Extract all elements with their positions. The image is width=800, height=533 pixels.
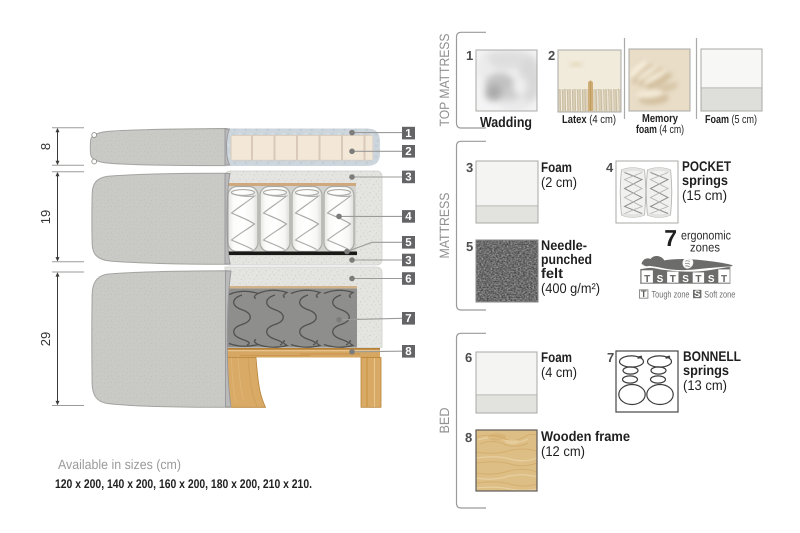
- svg-text:MATTRESS: MATTRESS: [437, 193, 452, 259]
- svg-text:Wooden frame: Wooden frame: [541, 428, 630, 444]
- svg-text:4: 4: [606, 160, 614, 175]
- svg-text:4: 4: [405, 211, 412, 223]
- svg-text:(4 cm): (4 cm): [541, 364, 577, 380]
- svg-text:5: 5: [405, 237, 412, 249]
- svg-text:120 x 200, 140 x 200, 160 x 20: 120 x 200, 140 x 200, 160 x 200, 180 x 2…: [55, 477, 312, 491]
- svg-text:7: 7: [405, 313, 411, 325]
- svg-text:6: 6: [405, 273, 411, 285]
- svg-text:felt: felt: [541, 265, 563, 281]
- svg-text:2: 2: [405, 146, 411, 158]
- svg-text:8: 8: [38, 143, 53, 150]
- svg-text:8: 8: [405, 346, 412, 358]
- svg-text:Latex (4 cm): Latex (4 cm): [562, 114, 616, 126]
- svg-text:1: 1: [466, 48, 473, 63]
- svg-text:TOP MATTRESS: TOP MATTRESS: [437, 34, 452, 127]
- svg-text:(13 cm): (13 cm): [683, 377, 727, 393]
- svg-text:springs: springs: [682, 172, 728, 188]
- svg-text:8: 8: [465, 430, 472, 445]
- svg-text:6: 6: [465, 350, 472, 365]
- svg-text:(2 cm): (2 cm): [541, 174, 577, 190]
- svg-text:Tough zone: Tough zone: [652, 289, 690, 300]
- svg-text:29: 29: [38, 332, 53, 346]
- svg-text:BED: BED: [437, 407, 452, 433]
- svg-text:(12 cm): (12 cm): [541, 443, 585, 459]
- svg-text:2: 2: [548, 48, 555, 63]
- svg-text:Available in sizes (cm): Available in sizes (cm): [58, 457, 181, 472]
- svg-text:Soft zone: Soft zone: [704, 289, 735, 300]
- svg-text:zones: zones: [690, 241, 720, 255]
- svg-text:springs: springs: [683, 362, 729, 378]
- svg-text:(15 cm): (15 cm): [682, 187, 727, 203]
- svg-text:(400 g/m²): (400 g/m²): [541, 280, 600, 296]
- svg-text:Foam: Foam: [541, 159, 572, 175]
- svg-text:3: 3: [466, 160, 473, 175]
- svg-text:19: 19: [38, 210, 53, 224]
- svg-text:1: 1: [405, 128, 412, 140]
- svg-text:Foam: Foam: [541, 349, 572, 365]
- svg-text:5: 5: [466, 239, 473, 254]
- svg-text:3: 3: [405, 255, 411, 267]
- svg-text:7: 7: [664, 225, 677, 251]
- svg-text:7: 7: [607, 350, 614, 365]
- svg-text:S: S: [694, 289, 700, 300]
- svg-text:foam (4 cm): foam (4 cm): [636, 124, 684, 136]
- svg-text:Foam (5 cm): Foam (5 cm): [705, 114, 757, 126]
- svg-text:3: 3: [405, 172, 411, 184]
- svg-text:T: T: [641, 289, 647, 300]
- svg-text:Wadding: Wadding: [480, 115, 532, 131]
